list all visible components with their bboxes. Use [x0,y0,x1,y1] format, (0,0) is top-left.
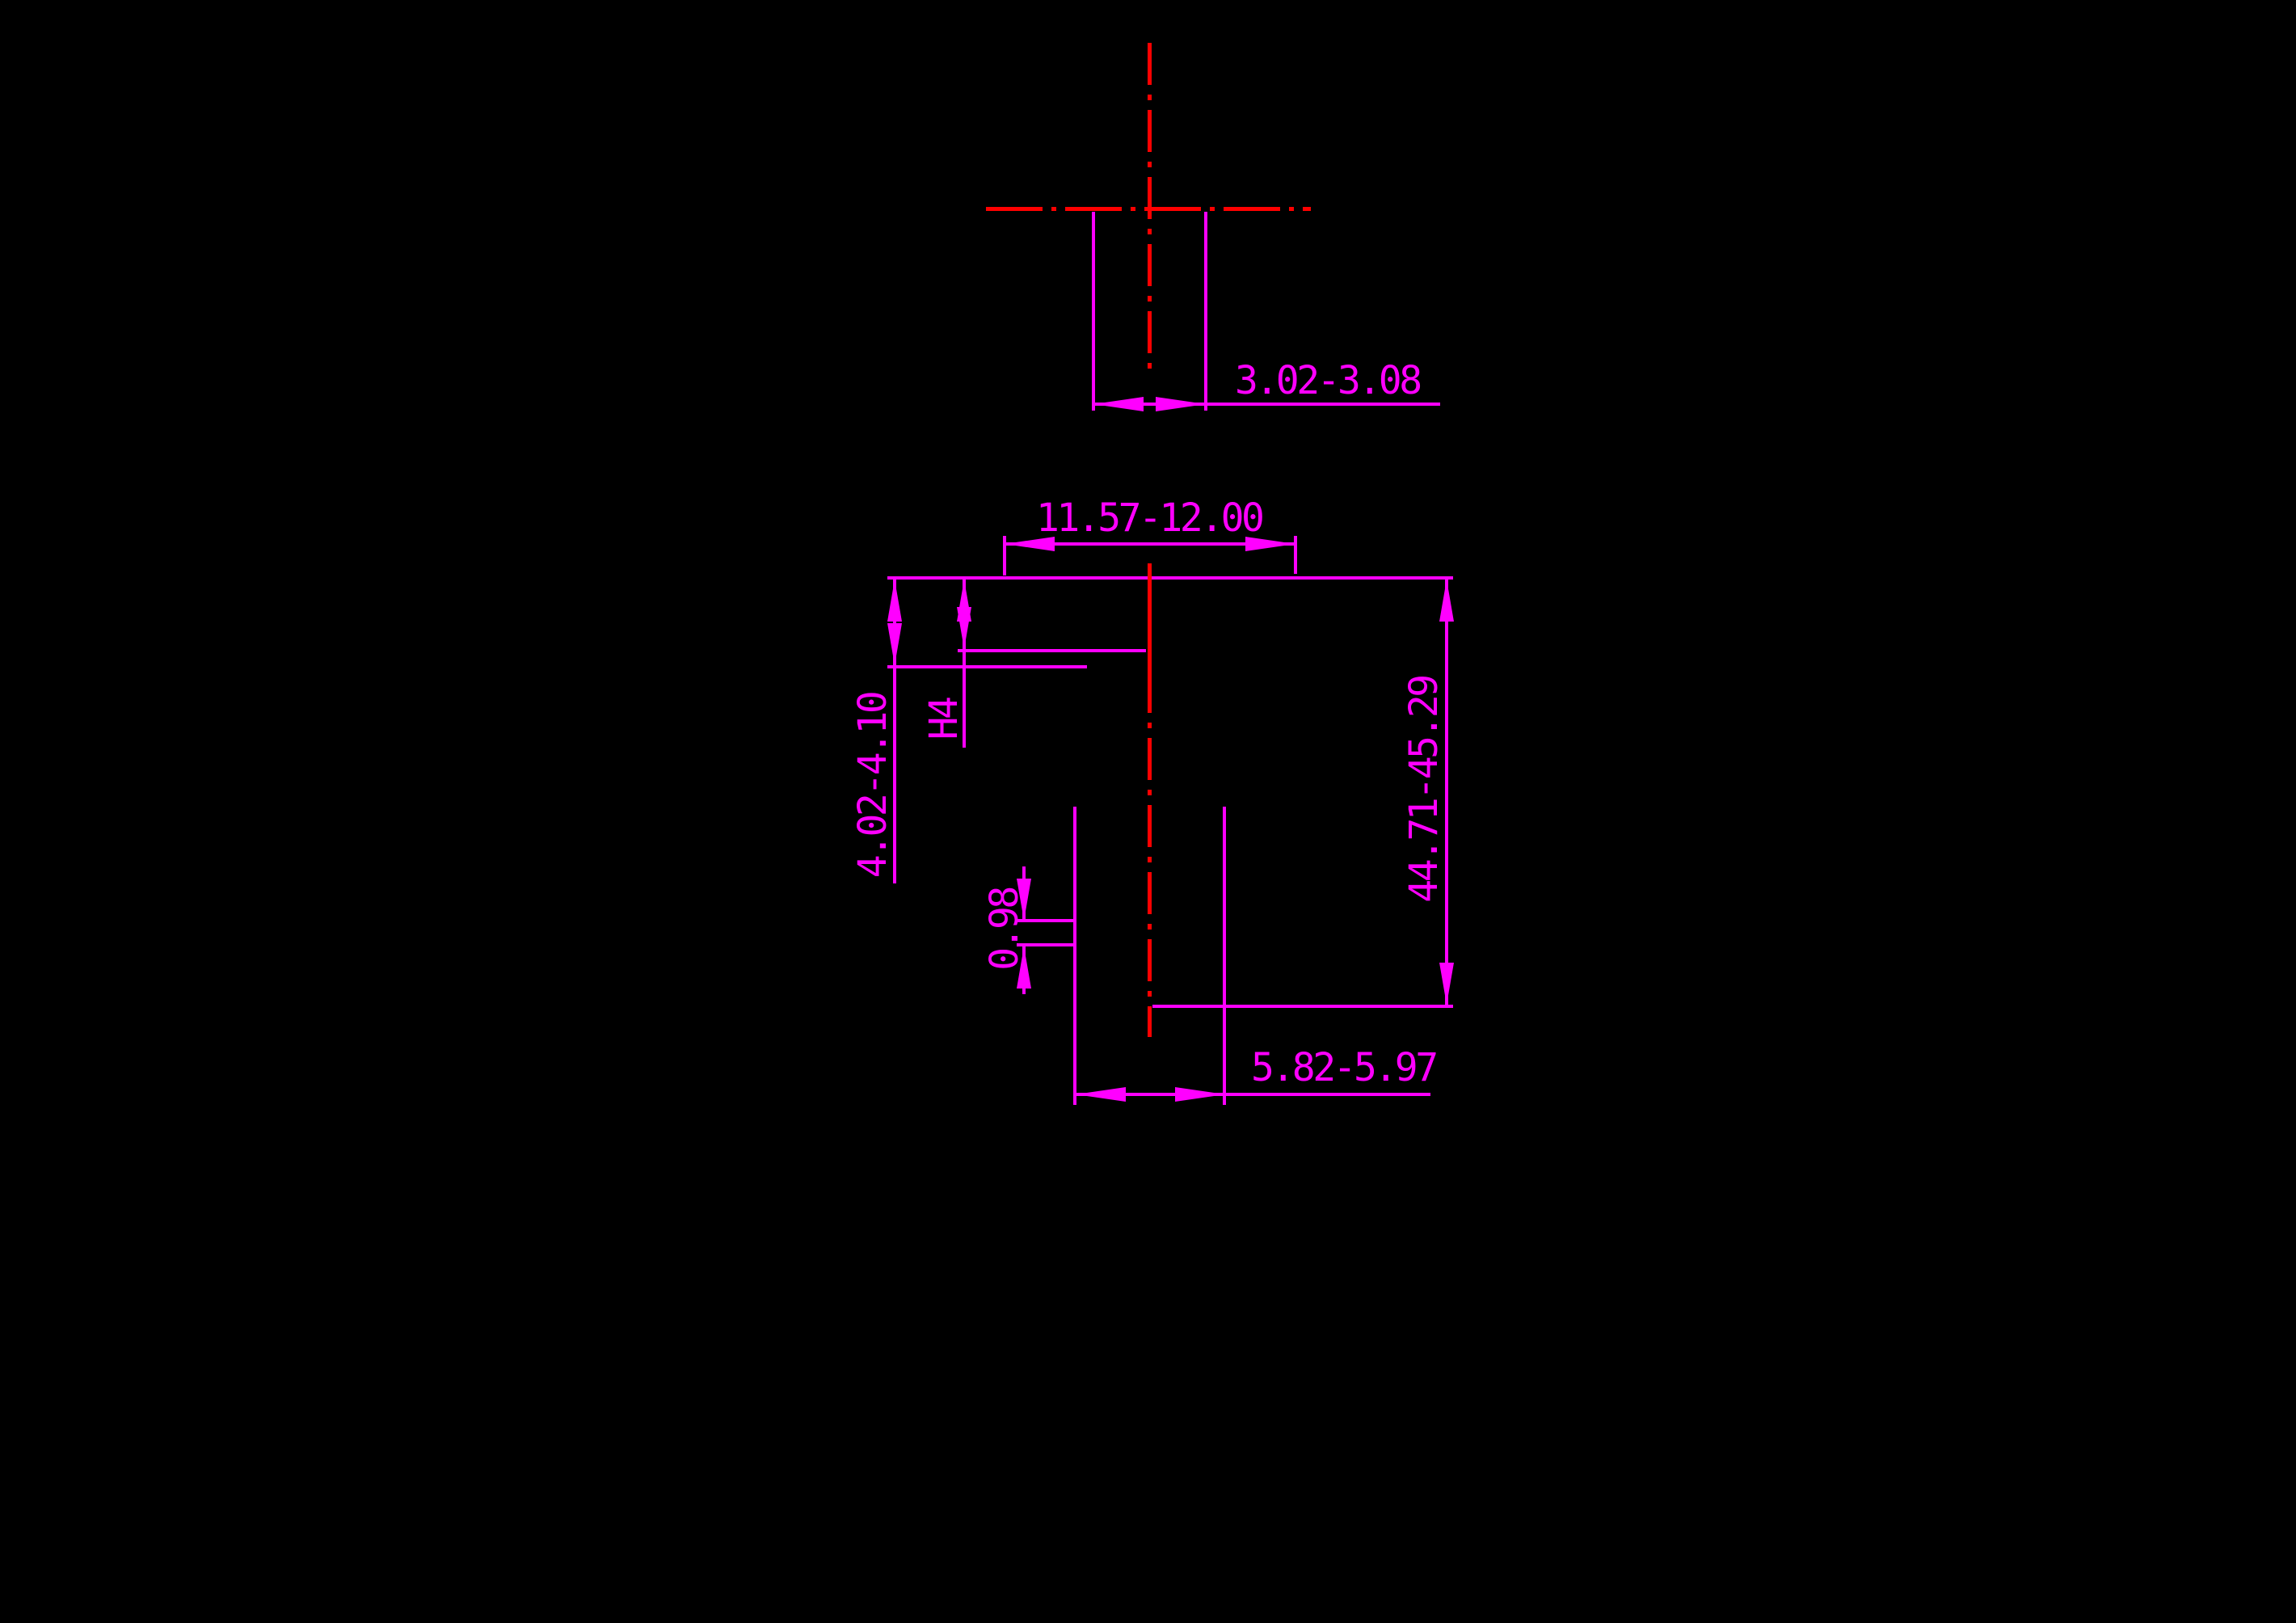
arrowhead-up-icon [887,580,902,622]
dim-text-shaft-width: 5.82-5.97 [1251,1048,1436,1087]
dim-text-pin-width: 3.02-3.08 [1235,361,1420,400]
cad-drawing-canvas: 3.02-3.08 11.57-12.00 4.02-4.10 H4 44.71… [0,0,2296,1623]
dim-text-flange-height: 4.02-4.10 [853,693,892,879]
arrowhead-up-icon [1439,580,1454,622]
arrowhead-down-icon [887,623,902,665]
top-view-extension-line-right [1204,212,1207,411]
shaft-width-dimension-line [1076,1093,1430,1096]
dim-text-head-width: 11.57-12.00 [1036,499,1262,537]
part-top-edge [887,576,1453,580]
shaft-right-edge [1223,807,1226,1105]
arrowhead-right-icon [1175,1087,1225,1102]
top-view-horizontal-centerline [986,207,1311,211]
arrowhead-left-icon [1093,397,1144,411]
part-step-edge [958,649,1146,652]
part-flange-bottom-edge [887,665,1087,668]
top-view-extension-line-left [1092,212,1095,411]
arrowhead-down-icon [1439,963,1454,1005]
arrowhead-right-icon [1156,397,1206,411]
top-view-vertical-centerline [1148,43,1152,369]
front-view-centerline-dashdot [1148,671,1152,1006]
dim-text-step-height: H4 [925,699,963,740]
dim-text-overall-height: 44.71-45.29 [1405,677,1443,902]
dim-text-groove: 0.98 [985,888,1024,971]
arrowhead-down-icon [957,607,971,649]
front-view-centerline-solid-top [1148,563,1152,671]
overall-height-reference-line [1152,1005,1453,1008]
front-view-centerline-solid-bottom [1148,1006,1152,1037]
arrowhead-left-icon [1076,1087,1126,1102]
shaft-left-edge [1073,807,1076,1105]
